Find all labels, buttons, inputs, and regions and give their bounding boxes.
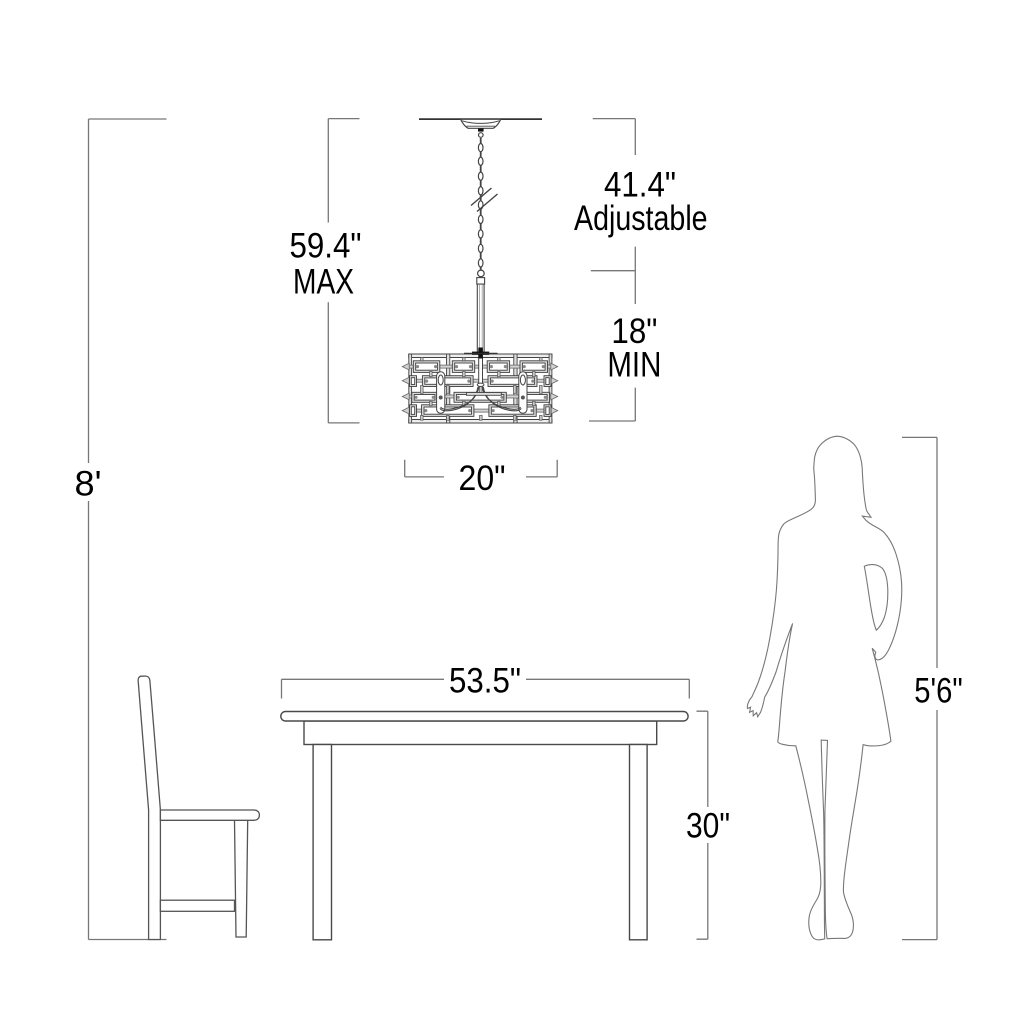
svg-text:Adjustable: Adjustable [574, 199, 708, 238]
svg-text:5'6": 5'6" [914, 672, 962, 711]
svg-text:59.4": 59.4" [290, 227, 362, 266]
svg-text:20": 20" [459, 459, 506, 498]
svg-text:MIN: MIN [607, 345, 661, 384]
svg-text:53.5": 53.5" [449, 662, 521, 701]
svg-text:8': 8' [75, 465, 102, 504]
svg-text:30": 30" [686, 806, 730, 845]
svg-text:MAX: MAX [293, 263, 354, 302]
